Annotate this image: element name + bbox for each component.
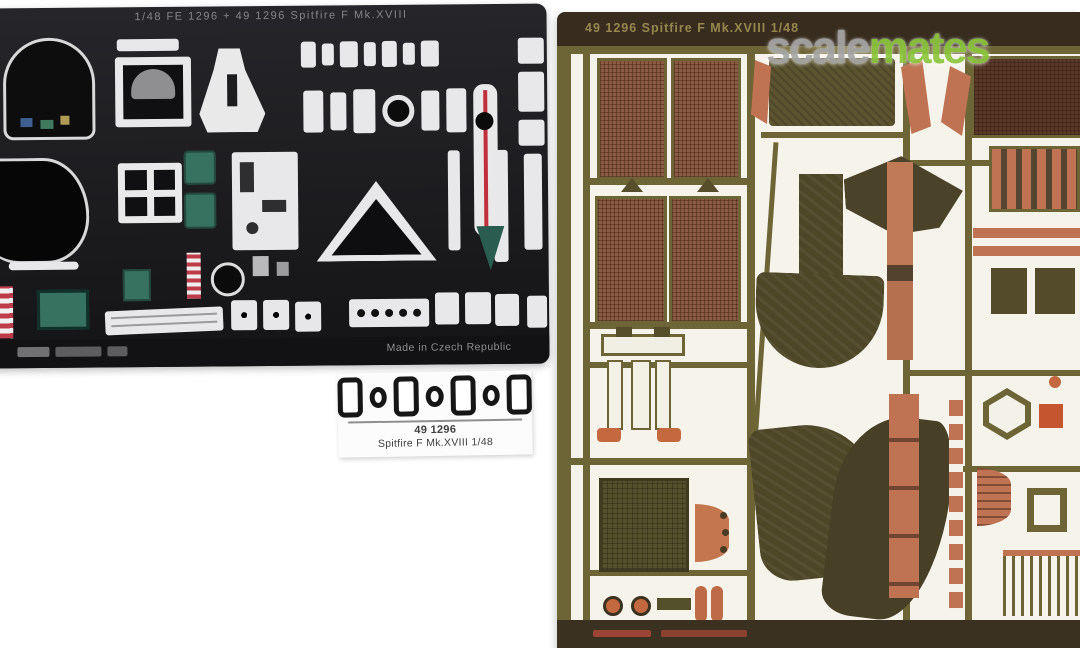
orange-cap — [657, 428, 681, 442]
bell-shaped-part — [199, 48, 266, 133]
label-title: Spitfire F Mk.XVIII 1/48 — [338, 435, 532, 451]
triangle-inner — [331, 199, 421, 256]
cluster-mark — [246, 222, 258, 234]
radiator-mesh — [595, 196, 667, 324]
instrument-panel-part — [3, 37, 96, 140]
square-part — [527, 296, 547, 328]
long-strip-part — [524, 154, 543, 250]
square-part — [295, 302, 321, 332]
buckle-part — [382, 41, 397, 67]
film-dial-circle — [369, 386, 387, 407]
copper-louvre-block — [989, 146, 1080, 212]
watermark-gray-text: scale — [766, 22, 869, 73]
thermometer-bulb — [475, 112, 493, 130]
film-frame — [450, 375, 476, 415]
product-label: 49 1296 Spitfire F Mk.XVIII 1/48 — [337, 370, 532, 457]
scalemates-watermark: scalemates — [766, 22, 989, 74]
small-strip-part — [117, 39, 179, 52]
dotted-strip-part — [349, 299, 429, 328]
edge-part — [518, 120, 544, 146]
grid-cell — [125, 170, 147, 190]
seatbelt-buckle-row — [303, 82, 471, 139]
radiator-mesh — [597, 58, 667, 180]
notch — [722, 529, 729, 536]
buckle-part — [322, 43, 334, 65]
orange-dot — [1049, 376, 1061, 388]
grey-part — [253, 256, 269, 276]
cluster-mark — [240, 162, 254, 192]
radiator-mesh — [671, 58, 741, 180]
panel-dial-gold — [60, 116, 69, 125]
panel-dial-blue — [20, 118, 32, 127]
teal-placard — [184, 192, 216, 228]
grommet-part — [603, 596, 623, 616]
copper-strip — [887, 162, 913, 360]
fret-left-colour-pe: 1/48 FE 1296 + 49 1296 Spitfire F Mk.XVI… — [0, 4, 550, 369]
film-dial-circle — [482, 384, 500, 405]
copper-dash-strip — [949, 400, 963, 612]
buckle-part — [421, 90, 439, 130]
sprue-runner — [761, 132, 903, 138]
headrest-blank — [0, 158, 90, 265]
bar-line — [111, 321, 217, 328]
buckle-part — [446, 88, 466, 132]
diamond-inner — [989, 395, 1025, 433]
panel-dial-green — [40, 120, 53, 129]
buckle-part — [303, 91, 323, 133]
grommet-part — [631, 596, 651, 616]
square-part — [495, 294, 519, 326]
orange-cap — [597, 428, 621, 442]
diamond-part — [983, 388, 1031, 440]
ladder-bar — [601, 334, 685, 356]
red-striped-edge-part — [0, 286, 13, 338]
dot — [357, 309, 365, 317]
teal-square-small — [123, 269, 151, 301]
orange-pill-part — [695, 586, 707, 622]
copper-strip-segmented — [889, 394, 919, 598]
bell-slot — [227, 74, 237, 106]
intake-fairing-stem — [799, 174, 843, 284]
olive-mesh-plate — [599, 478, 689, 572]
watermark-green-text: mates — [869, 22, 989, 73]
dot — [399, 309, 407, 317]
copper-bar — [973, 228, 1080, 238]
radiator-mesh — [669, 196, 741, 324]
orange-pill-part — [711, 586, 723, 622]
copper-half-disc — [977, 468, 1011, 526]
buckle-part — [353, 89, 375, 133]
ladder-strip — [631, 360, 651, 430]
arc-strip-part — [9, 262, 79, 271]
teal-rect-part — [37, 290, 89, 330]
red-striped-strip — [187, 253, 201, 299]
fret-left-header-text: 1/48 FE 1296 + 49 1296 Spitfire F Mk.XVI… — [134, 8, 514, 23]
gun-sight-triangle — [316, 181, 437, 262]
film-frame — [337, 377, 363, 417]
grid-cell — [154, 196, 176, 216]
red-marking — [661, 630, 747, 637]
notch — [720, 512, 727, 519]
band-mark — [17, 347, 49, 357]
red-marking — [593, 630, 651, 637]
film-dial-circle — [426, 385, 444, 406]
square-part — [231, 300, 257, 330]
frame-edge — [557, 46, 571, 648]
orange-square — [1039, 404, 1063, 428]
copper-bar — [973, 246, 1080, 256]
fret-right-brass-pe: 49 1296 Spitfire F Mk.XVIII 1/48 — [557, 12, 1080, 648]
bar-line — [111, 313, 217, 320]
dot — [413, 309, 421, 317]
intake-fairing-bell — [753, 272, 884, 370]
black-disc-part — [211, 262, 245, 296]
product-photo: 1/48 FE 1296 + 49 1296 Spitfire F Mk.XVI… — [0, 0, 1080, 648]
film-strip — [337, 373, 532, 418]
white-part-cluster — [232, 152, 299, 251]
square-part — [263, 300, 289, 330]
edge-part — [518, 38, 544, 64]
ring-part — [382, 95, 414, 127]
grid-cell — [125, 197, 147, 217]
grille-louvres — [1003, 550, 1080, 616]
dot — [385, 309, 393, 317]
buckle-part — [421, 40, 439, 66]
band-mark — [55, 346, 101, 356]
band-mark — [107, 346, 127, 356]
sprue-runner — [557, 458, 753, 465]
buckle-part — [330, 92, 346, 130]
cluster-mark — [262, 200, 286, 212]
ladder-tab — [654, 327, 670, 337]
film-frame — [506, 374, 532, 414]
dial-film-frame — [115, 57, 192, 128]
buckle-part — [364, 42, 376, 66]
buckle-row-small — [301, 36, 465, 71]
long-strip-part — [448, 150, 461, 250]
grid-cell — [153, 170, 175, 190]
film-frame — [394, 376, 420, 416]
olive-rect-part — [1035, 268, 1075, 314]
olive-rect-part — [991, 268, 1027, 314]
grey-part — [277, 262, 289, 276]
edge-part — [518, 72, 544, 112]
ladder-strip — [607, 360, 623, 430]
orange-half-disc — [695, 504, 729, 562]
square-part — [465, 292, 491, 324]
thermometer-red-line — [483, 90, 488, 230]
made-in-text: Made in Czech Republic — [387, 341, 512, 354]
ladder-strip — [655, 360, 671, 430]
sprue-runner — [965, 54, 972, 620]
olive-frame-square — [1027, 488, 1067, 532]
grid-frame-part — [118, 163, 183, 224]
fret-right-bottom-band — [557, 620, 1080, 648]
buckle-part — [301, 42, 316, 68]
sprue-runner — [747, 54, 755, 620]
sprue-runner — [583, 54, 590, 620]
notch — [720, 546, 727, 553]
dot — [371, 309, 379, 317]
teal-placard-pair — [184, 150, 217, 230]
buckle-part — [340, 41, 358, 67]
buckle-part — [403, 43, 415, 65]
olive-bar-part — [657, 598, 691, 610]
ladder-tab — [616, 327, 632, 337]
square-part — [435, 292, 459, 324]
long-white-bar — [105, 306, 224, 335]
teal-placard — [184, 150, 216, 184]
